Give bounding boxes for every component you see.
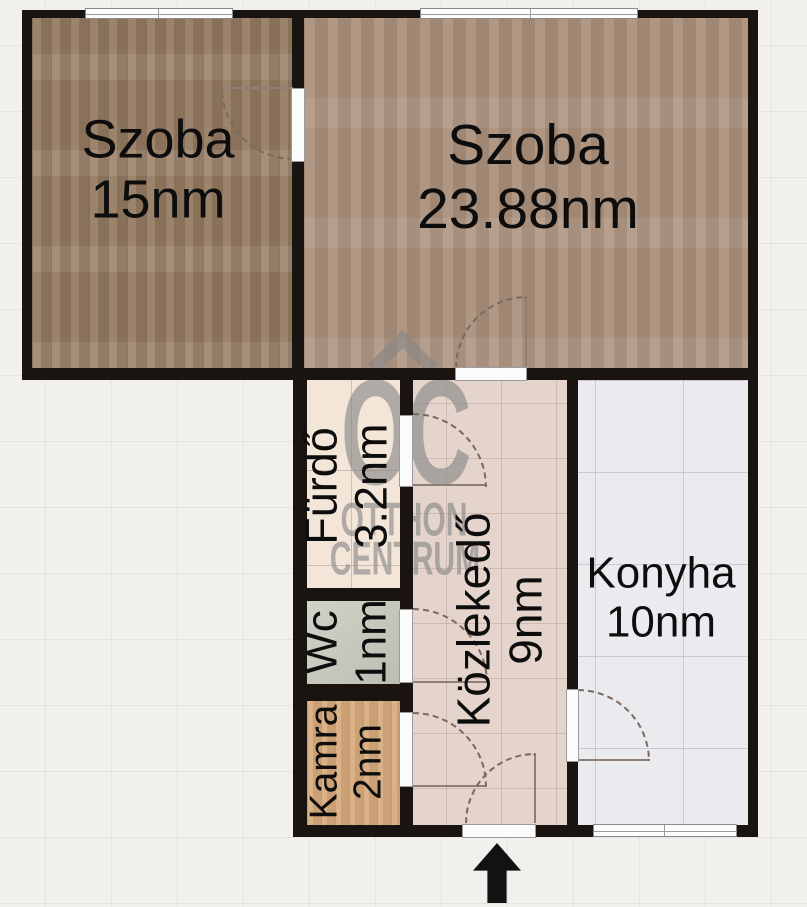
wall-room-divider-upper <box>292 18 304 88</box>
room-area: 15nm <box>81 170 234 230</box>
wall-wc-bottom <box>307 684 400 701</box>
wall-konyha-left-upper <box>567 380 578 689</box>
room-name: Fürdő <box>297 423 347 548</box>
room-name: Szoba <box>417 114 639 178</box>
wall-left-upper <box>22 10 32 380</box>
wall-bottom-right <box>737 825 758 837</box>
room-area: 2nm <box>346 705 390 820</box>
room-label-szoba2: Szoba 23.88nm <box>417 114 639 242</box>
room-area: 9nm <box>500 513 552 728</box>
room-area: 1nm <box>347 599 396 685</box>
wall-room-divider-lower <box>292 162 304 368</box>
floor-plan: OC OTTHON CENTRUM <box>0 0 807 907</box>
room-name: Kamra <box>302 705 346 820</box>
wall-right <box>748 10 758 837</box>
wall-mid-horizontal <box>22 368 758 380</box>
wall-bottom-mid <box>536 825 593 837</box>
door-gap-szoba1-szoba2 <box>291 88 305 162</box>
wall-furdo-corridor-1 <box>400 380 413 415</box>
door-gap-szoba2-kozlekedo <box>455 367 527 381</box>
room-name: Szoba <box>81 110 234 170</box>
room-label-konyha: Konyha 10nm <box>586 549 735 648</box>
door-gap-kamra <box>399 712 413 787</box>
room-area: 23.88nm <box>417 178 639 242</box>
room-label-kozlekedo: Közlekedő 9nm <box>448 513 551 728</box>
wall-kamra-corridor <box>400 787 413 825</box>
door-gap-furdo <box>399 415 413 487</box>
wall-konyha-left-lower <box>567 762 578 825</box>
room-area: 10nm <box>586 598 735 647</box>
entrance-arrow-icon <box>473 843 521 903</box>
room-name: Konyha <box>586 549 735 598</box>
door-gap-konyha <box>566 689 579 762</box>
room-label-wc: Wc 1nm <box>298 599 397 685</box>
room-name: Wc <box>298 599 347 685</box>
window-szoba1 <box>85 8 233 19</box>
wall-furdo-corridor-2 <box>400 487 413 609</box>
wall-bottom-left <box>293 825 462 837</box>
door-gap-entrance <box>462 824 536 838</box>
room-name: Közlekedő <box>448 513 500 728</box>
wall-wc-corridor <box>400 683 413 712</box>
room-label-szoba1: Szoba 15nm <box>81 110 234 231</box>
window-konyha <box>593 824 737 837</box>
room-label-furdo: Fürdő 3.2nm <box>297 423 398 548</box>
room-label-kamra: Kamra 2nm <box>302 705 389 820</box>
room-area: 3.2nm <box>347 423 397 548</box>
window-szoba2 <box>420 8 638 19</box>
door-gap-wc <box>399 609 413 683</box>
